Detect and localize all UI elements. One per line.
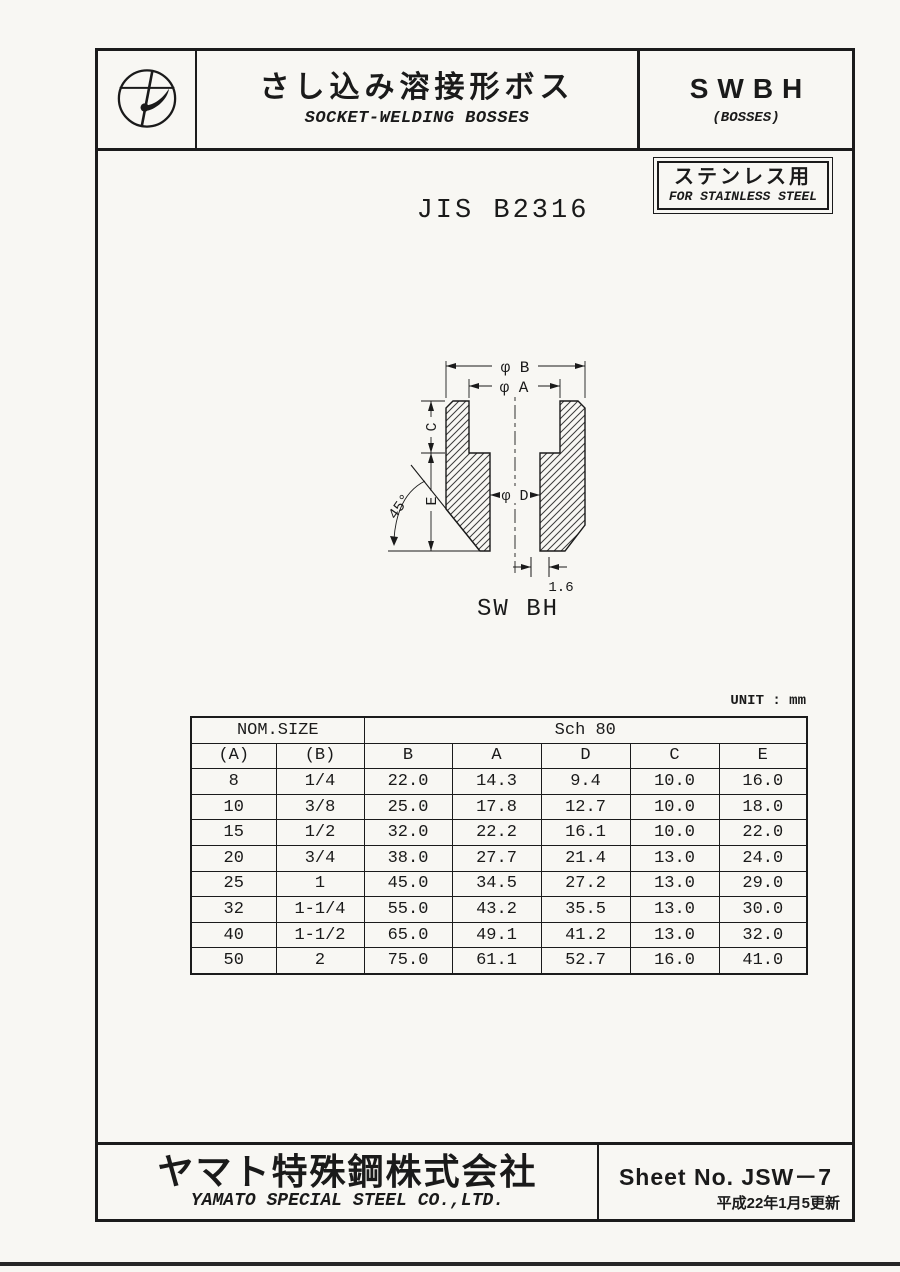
company-logo-icon xyxy=(109,62,185,138)
table-cell: 35.5 xyxy=(541,897,630,923)
table-cell: 3/8 xyxy=(276,794,364,820)
table-cell: 10.0 xyxy=(630,769,719,795)
table-row: 321-1/455.043.235.513.030.0 xyxy=(191,897,807,923)
col-header-a: A xyxy=(452,743,541,769)
stainless-badge: ステンレス用 FOR STAINLESS STEEL xyxy=(653,157,833,214)
table-cell: 1-1/4 xyxy=(276,897,364,923)
table-cell: 13.0 xyxy=(630,922,719,948)
table-cell: 22.0 xyxy=(719,820,807,846)
page-title-jp: さし込み溶接形ボス xyxy=(260,71,575,104)
table-cell: 13.0 xyxy=(630,845,719,871)
table-cell: 75.0 xyxy=(364,948,452,974)
table-cell: 52.7 xyxy=(541,948,630,974)
table-cell: 1 xyxy=(276,871,364,897)
col-header-d: D xyxy=(541,743,630,769)
table-cell: 29.0 xyxy=(719,871,807,897)
dim-label-c: C xyxy=(424,422,441,431)
table-cell: 15 xyxy=(191,820,276,846)
table-cell: 27.2 xyxy=(541,871,630,897)
title-cell: さし込み溶接形ボス SOCKET-WELDING BOSSES xyxy=(197,51,640,148)
document-frame: さし込み溶接形ボス SOCKET-WELDING BOSSES SWBH (BO… xyxy=(95,48,855,1222)
company-cell: ヤマト特殊鋼株式会社 YAMATO SPECIAL STEEL CO.,LTD. xyxy=(98,1145,599,1219)
stainless-badge-inner: ステンレス用 FOR STAINLESS STEEL xyxy=(657,161,829,210)
dim-label-angle: 45° xyxy=(385,491,414,523)
dim-label-chamfer: 1.6 xyxy=(548,580,573,596)
table-row: 50275.061.152.716.041.0 xyxy=(191,948,807,974)
revision-date: 平成22年1月5更新 xyxy=(717,1192,840,1213)
table-cell: 32.0 xyxy=(364,820,452,846)
table-cell: 38.0 xyxy=(364,845,452,871)
dim-label-d: φ D xyxy=(501,488,528,505)
table-cell: 14.3 xyxy=(452,769,541,795)
table-cell: 40 xyxy=(191,922,276,948)
table-cell: 8 xyxy=(191,769,276,795)
body-section-right xyxy=(540,401,585,551)
col-header-b: B xyxy=(364,743,452,769)
sheet-number: Sheet No. JSW－7 xyxy=(599,1158,852,1192)
col-header-c: C xyxy=(630,743,719,769)
table-cell: 25.0 xyxy=(364,794,452,820)
col-header-b-nom: (B) xyxy=(276,743,364,769)
page-title-en: SOCKET-WELDING BOSSES xyxy=(305,109,530,128)
standard-number: JIS B2316 xyxy=(378,196,628,226)
table-cell: 61.1 xyxy=(452,948,541,974)
cross-section-drawing: φ B φ A C E 45° φ D xyxy=(373,333,653,633)
table-cell: 10.0 xyxy=(630,794,719,820)
table-cell: 2 xyxy=(276,948,364,974)
table-cell: 30.0 xyxy=(719,897,807,923)
table-cell: 12.7 xyxy=(541,794,630,820)
table-row: 81/422.014.39.410.016.0 xyxy=(191,769,807,795)
table-row: 203/438.027.721.413.024.0 xyxy=(191,845,807,871)
table-cell: 43.2 xyxy=(452,897,541,923)
table-cell: 32 xyxy=(191,897,276,923)
column-header-row: (A) (B) B A D C E xyxy=(191,743,807,769)
table-cell: 34.5 xyxy=(452,871,541,897)
table-cell: 50 xyxy=(191,948,276,974)
table-cell: 1/2 xyxy=(276,820,364,846)
group-header-row: NOM.SIZE Sch 80 xyxy=(191,717,807,743)
table-cell: 16.0 xyxy=(719,769,807,795)
table-row: 103/825.017.812.710.018.0 xyxy=(191,794,807,820)
table-cell: 21.4 xyxy=(541,845,630,871)
company-name-jp: ヤマト特殊鋼株式会社 xyxy=(157,1153,537,1191)
table-cell: 24.0 xyxy=(719,845,807,871)
table-cell: 16.0 xyxy=(630,948,719,974)
sheet-number-cell: Sheet No. JSW－7 平成22年1月5更新 xyxy=(599,1145,852,1219)
dimension-table: NOM.SIZE Sch 80 (A) (B) B A D C E 81/422… xyxy=(190,716,808,975)
group-header-sch80: Sch 80 xyxy=(364,717,807,743)
col-header-a-nom: (A) xyxy=(191,743,276,769)
table-cell: 41.0 xyxy=(719,948,807,974)
table-cell: 55.0 xyxy=(364,897,452,923)
table-cell: 18.0 xyxy=(719,794,807,820)
drawing-caption: SW BH xyxy=(477,596,559,623)
spec-table-body: 81/422.014.39.410.016.0103/825.017.812.7… xyxy=(191,769,807,974)
table-cell: 22.2 xyxy=(452,820,541,846)
table-cell: 1-1/2 xyxy=(276,922,364,948)
badge-text-en: FOR STAINLESS STEEL xyxy=(669,189,817,204)
dim-label-e: E xyxy=(424,496,441,505)
table-cell: 22.0 xyxy=(364,769,452,795)
table-cell: 45.0 xyxy=(364,871,452,897)
table-cell: 16.1 xyxy=(541,820,630,846)
unit-label: UNIT : mm xyxy=(658,693,806,709)
table-cell: 13.0 xyxy=(630,871,719,897)
table-cell: 3/4 xyxy=(276,845,364,871)
product-code-sub: (BOSSES) xyxy=(712,110,779,126)
table-row: 401-1/265.049.141.213.032.0 xyxy=(191,922,807,948)
company-name-en: YAMATO SPECIAL STEEL CO.,LTD. xyxy=(191,1191,504,1211)
footer-block: ヤマト特殊鋼株式会社 YAMATO SPECIAL STEEL CO.,LTD.… xyxy=(98,1142,852,1219)
logo-cell xyxy=(98,51,197,148)
table-cell: 49.1 xyxy=(452,922,541,948)
title-block: さし込み溶接形ボス SOCKET-WELDING BOSSES SWBH (BO… xyxy=(98,51,852,151)
body-section-left xyxy=(446,401,490,551)
table-cell: 27.7 xyxy=(452,845,541,871)
table-cell: 10.0 xyxy=(630,820,719,846)
badge-text-jp: ステンレス用 xyxy=(674,167,812,187)
group-header-nom-size: NOM.SIZE xyxy=(191,717,364,743)
table-cell: 10 xyxy=(191,794,276,820)
table-cell: 32.0 xyxy=(719,922,807,948)
table-cell: 41.2 xyxy=(541,922,630,948)
table-row: 25145.034.527.213.029.0 xyxy=(191,871,807,897)
dim-label-a: φ A xyxy=(500,379,529,397)
table-cell: 20 xyxy=(191,845,276,871)
table-cell: 9.4 xyxy=(541,769,630,795)
product-code: SWBH xyxy=(681,73,812,105)
table-row: 151/232.022.216.110.022.0 xyxy=(191,820,807,846)
scan-artifact-line xyxy=(0,1262,900,1266)
table-cell: 1/4 xyxy=(276,769,364,795)
table-cell: 13.0 xyxy=(630,897,719,923)
col-header-e: E xyxy=(719,743,807,769)
table-cell: 17.8 xyxy=(452,794,541,820)
product-code-cell: SWBH (BOSSES) xyxy=(640,51,852,148)
table-cell: 65.0 xyxy=(364,922,452,948)
dim-label-b: φ B xyxy=(501,359,530,377)
table-cell: 25 xyxy=(191,871,276,897)
